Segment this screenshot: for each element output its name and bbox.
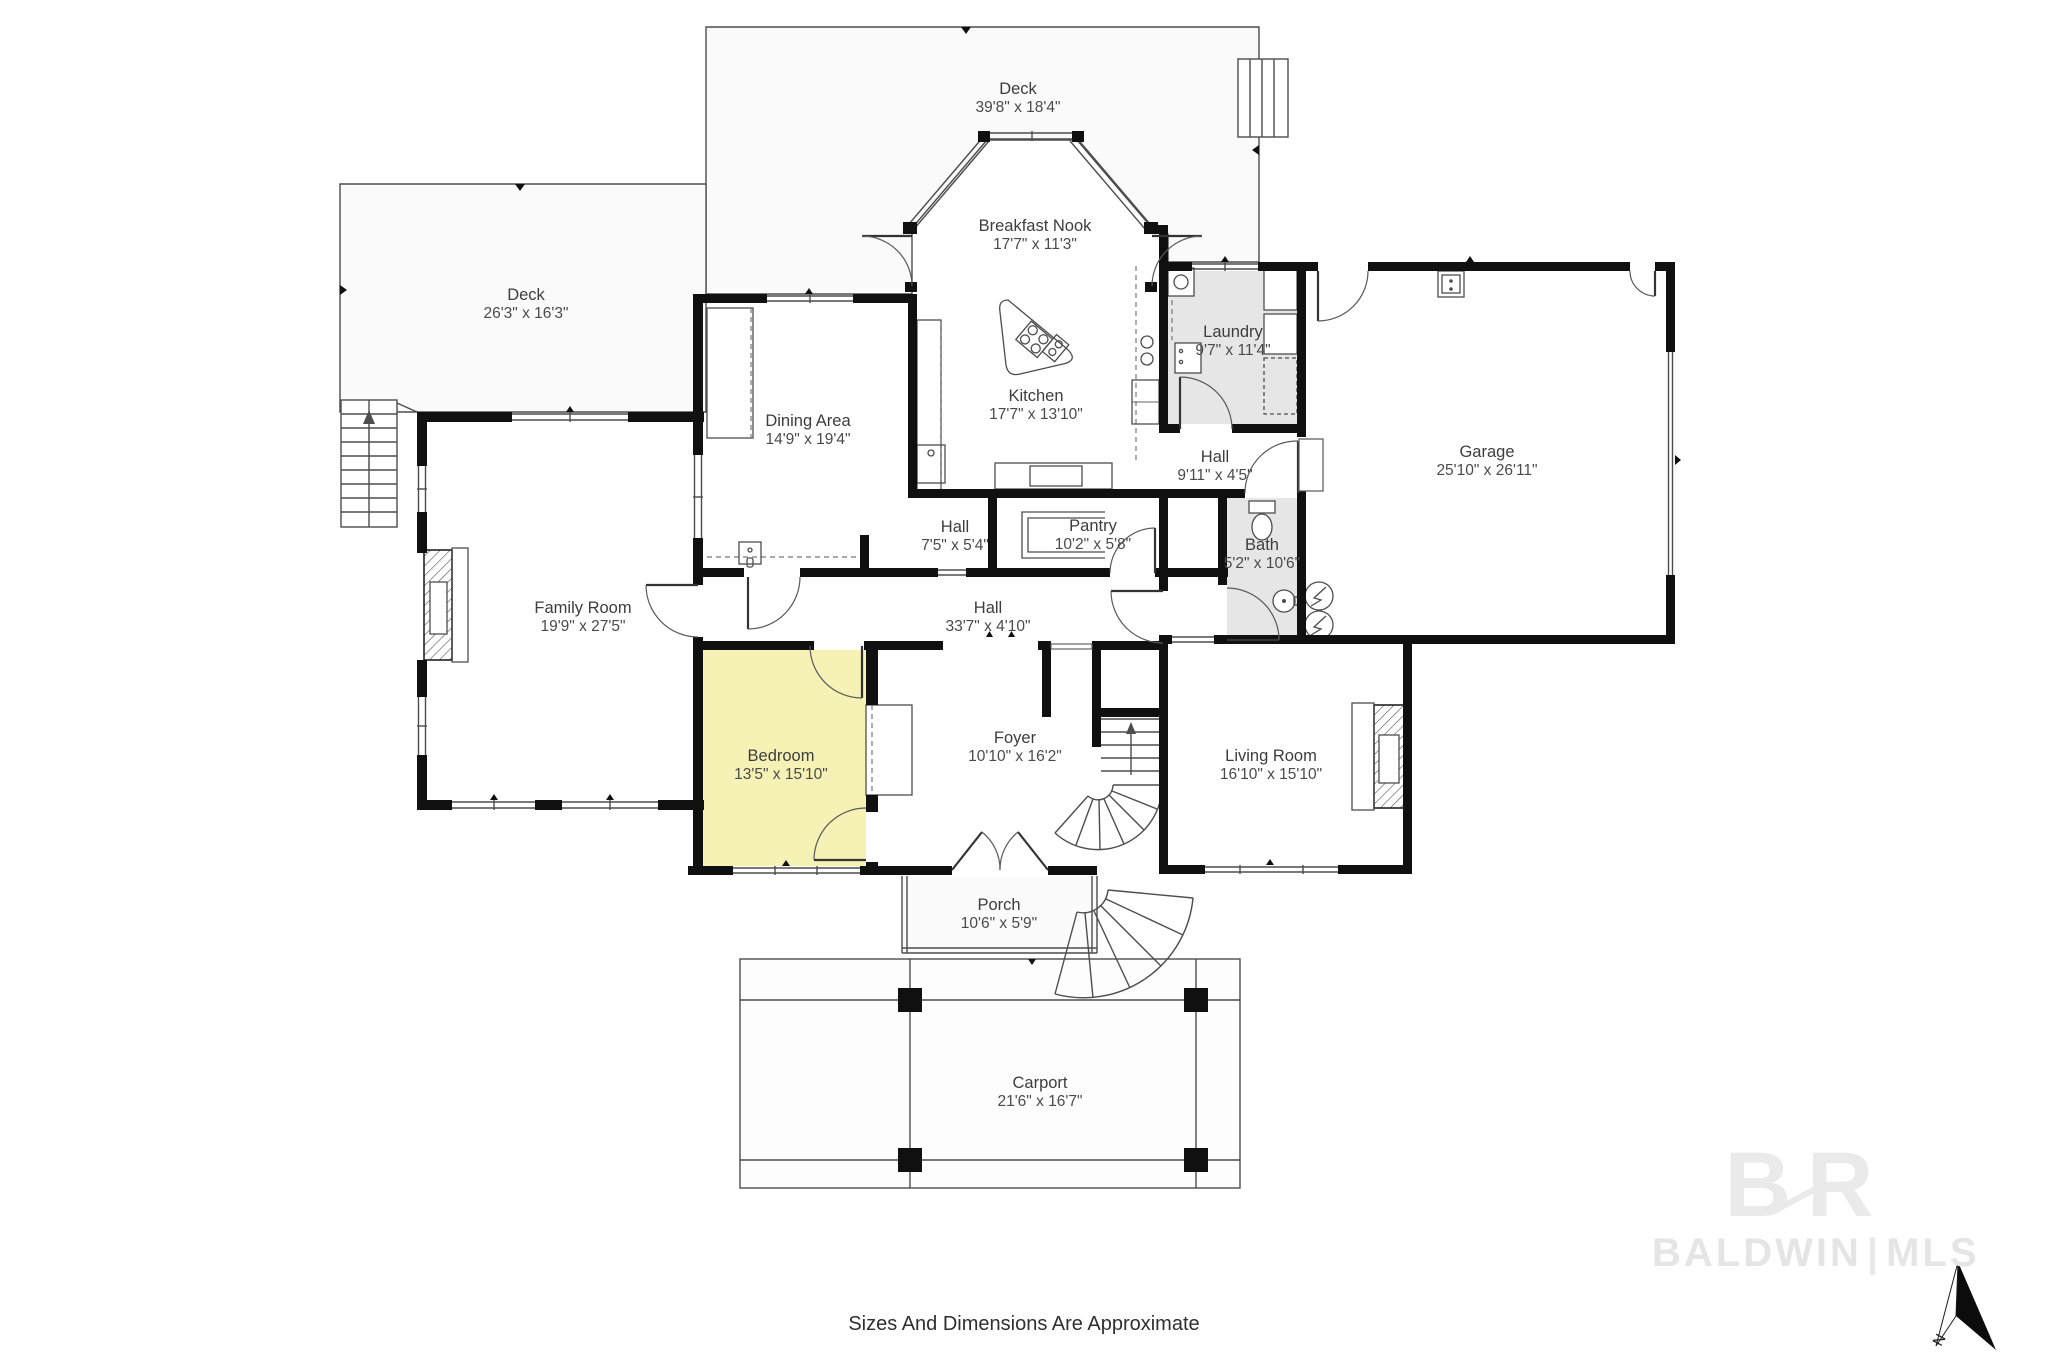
dims-hall-upper: 9'11" x 4'5" (1177, 467, 1252, 484)
dims-breakfast-nook: 17'7" x 11'3" (993, 236, 1077, 253)
watermark-suffix-text: MLS (1886, 1231, 1979, 1275)
label-kitchen: Kitchen (1008, 387, 1063, 405)
label-porch: Porch (977, 896, 1020, 914)
label-laundry: Laundry (1203, 323, 1263, 341)
deck-stairs-top (1238, 59, 1288, 137)
dims-garage: 25'10" x 26'11" (1436, 462, 1537, 479)
watermark-brand: BALDWIN|MLS (1652, 1231, 1962, 1276)
dims-hall-long: 33'7" x 4'10" (945, 618, 1030, 635)
carport-area (740, 959, 1240, 1188)
toilet-icon (1249, 501, 1275, 540)
garage-hall-doorway (1299, 439, 1323, 491)
kitchen-counters-icon (917, 266, 1159, 490)
dims-pantry: 10'2" x 5'8" (1055, 536, 1131, 553)
label-dining-area: Dining Area (765, 412, 851, 430)
dims-deck-left: 26'3" x 16'3" (483, 305, 568, 322)
dims-laundry: 9'7" x 11'4" (1195, 342, 1270, 359)
dims-bath: 5'2" x 10'6" (1224, 555, 1300, 572)
dims-porch: 10'6" x 5'9" (961, 915, 1037, 932)
watermark-separator: | (1867, 1231, 1881, 1275)
closet-opening-sill (1051, 644, 1092, 649)
label-deck-left: Deck (507, 286, 545, 304)
deck-stairs-left (341, 400, 397, 527)
living-fireplace-icon (1352, 703, 1404, 810)
watermark-monogram: BR (1652, 1142, 1962, 1229)
garage-panel-icon (1438, 271, 1464, 297)
label-hall-long: Hall (974, 599, 1002, 617)
foyer-staircase (1055, 719, 1162, 850)
label-carport: Carport (1012, 1074, 1067, 1092)
label-deck-top: Deck (999, 80, 1037, 98)
label-bath: Bath (1245, 536, 1279, 554)
label-breakfast-nook: Breakfast Nook (979, 217, 1093, 235)
label-hall-upper: Hall (1201, 448, 1229, 466)
family-fireplace-icon (424, 548, 468, 662)
dims-living-room: 16'10" x 15'10" (1220, 766, 1322, 783)
label-foyer: Foyer (994, 729, 1037, 747)
label-bedroom: Bedroom (748, 747, 815, 765)
label-garage: Garage (1459, 443, 1514, 461)
dims-kitchen: 17'7" x 13'10" (989, 406, 1083, 423)
disclaimer-text: Sizes And Dimensions Are Approximate (848, 1313, 1199, 1335)
kitchen-island-icon (1000, 300, 1073, 375)
floor-plan-page: Deck 39'8" x 18'4" Breakfast Nook 17'7" … (0, 0, 2048, 1366)
dims-hall-small: 7'5" x 5'4" (921, 537, 989, 554)
dims-deck-top: 39'8" x 18'4" (975, 99, 1060, 116)
watermark-brand-text: BALDWIN (1652, 1231, 1862, 1275)
label-pantry: Pantry (1069, 517, 1117, 535)
label-hall-small: Hall (941, 518, 969, 536)
deck-top-area (706, 27, 1259, 294)
dims-dining-area: 14'9" x 19'4" (765, 431, 850, 448)
watermark-monogram-text: BR (1725, 1134, 1890, 1236)
label-living-room: Living Room (1225, 747, 1317, 765)
label-family-room: Family Room (534, 599, 631, 617)
bedroom-closet-icon (866, 705, 912, 795)
brand-watermark: BR BALDWIN|MLS (1652, 1142, 1962, 1276)
dims-family-room: 19'9" x 27'5" (540, 618, 625, 635)
dims-carport: 21'6" x 16'7" (997, 1093, 1082, 1110)
dims-bedroom: 13'5" x 15'10" (734, 766, 828, 783)
dims-foyer: 10'10" x 16'2" (968, 748, 1062, 765)
water-heater-icons (1305, 582, 1333, 639)
